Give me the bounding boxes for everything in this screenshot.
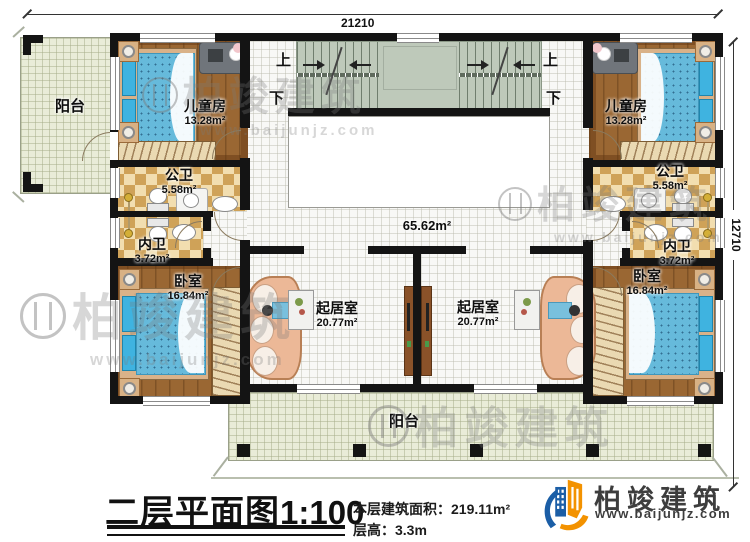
room-area: 16.84m²: [607, 285, 687, 297]
room-name: 阳台: [364, 414, 444, 431]
wall-left-corridor-low: [240, 240, 250, 266]
stair-arrow-line-l2: [357, 64, 371, 66]
floor-area-value: 219.11m²: [451, 501, 510, 517]
blanket: [178, 293, 204, 373]
floor-area-label: 本层建筑面积：: [353, 501, 451, 517]
label-privbath-left: 内卫 3.72m²: [112, 237, 192, 265]
sofa-cushion: [252, 346, 278, 376]
dim-top-value: 21210: [338, 16, 377, 30]
room-area: 65.62m²: [387, 219, 467, 234]
wall-left-closet: [110, 160, 250, 167]
door-gap-balcony-left: [110, 132, 118, 160]
wall-hall-south-a: [245, 246, 304, 254]
void-top-wall: [288, 108, 550, 116]
nightstand: [695, 122, 716, 143]
stair-arrow-line-r2: [521, 64, 535, 66]
headboard-cushion: [699, 58, 713, 96]
headboard-cushion: [122, 335, 136, 371]
floor-height-line: 层高：3.3m: [353, 520, 427, 540]
tv-cabinet-right: [421, 286, 432, 376]
headboard-cushion: [699, 296, 713, 332]
wall-left-corridor-mid: [240, 158, 250, 210]
balcony-column: [470, 444, 483, 457]
title-underline-thick: [107, 525, 345, 529]
label-bedroom-right: 卧室 16.84m²: [607, 269, 687, 297]
bed-right: [625, 288, 715, 380]
label-living-left: 起居室 20.77m²: [297, 301, 377, 329]
sofa-cushion: [250, 316, 274, 344]
room-name: 公卫: [139, 168, 219, 184]
tv-screen: [426, 303, 429, 331]
window-top-child-left: [140, 33, 215, 43]
room-area: 13.28m²: [165, 115, 245, 127]
wall-right-nook-b: [622, 248, 630, 260]
window-bottom-living-left: [297, 384, 360, 394]
cabinet-light: [425, 341, 429, 347]
tv-screen: [407, 303, 410, 331]
floor-height-label: 层高：: [353, 522, 395, 538]
nightstand: [695, 41, 716, 62]
dim-right-value: 12710: [729, 210, 743, 260]
stair-arrow-l2: [349, 60, 357, 70]
sink-oval: [212, 196, 238, 212]
headboard-cushion: [122, 58, 136, 96]
stair-down-label-left: 下: [269, 87, 284, 108]
label-pubbath-right: 公卫 5.58m²: [630, 164, 710, 192]
stair-up-label-left: 上: [276, 49, 291, 70]
label-child-left: 儿童房 13.28m²: [165, 99, 245, 127]
balcony-bottom-chamfer-l: [213, 457, 229, 477]
room-name: 儿童房: [586, 99, 666, 115]
stair-arrow-r2: [513, 60, 521, 70]
wall-left-nook-a: [203, 217, 211, 231]
floor-plan-canvas: 上 下 上 下: [0, 0, 750, 542]
room-area: 20.77m²: [438, 316, 518, 328]
label-pubbath-left: 公卫 5.58m²: [139, 168, 219, 196]
wall-right-corridor-low: [583, 240, 593, 266]
sink-oval: [600, 196, 626, 212]
room-area: 5.58m²: [630, 180, 710, 192]
stair-arrow-line-r1: [467, 64, 481, 66]
rail-knob: [124, 193, 133, 202]
balcony-corner-col-b2: [23, 172, 31, 192]
label-child-right: 儿童房 13.28m²: [586, 99, 666, 127]
window-top-child-right: [620, 33, 692, 43]
room-name: 内卫: [637, 239, 717, 255]
table-flowers: [521, 309, 527, 315]
room-name: 内卫: [112, 237, 192, 253]
stairwell: [296, 41, 542, 112]
wall-hall-south-b: [368, 246, 466, 254]
label-hall-area: 65.62m²: [387, 219, 467, 234]
label-living-right: 起居室 20.77m²: [438, 300, 518, 328]
room-name: 公卫: [630, 164, 710, 180]
window-left-child: [110, 57, 120, 130]
window-left-bath1: [110, 168, 120, 198]
stair-landing: [383, 46, 457, 90]
stair-down-label-right: 下: [546, 87, 561, 108]
sink-basin: [641, 193, 657, 208]
room-area: 16.84m²: [148, 290, 228, 302]
balcony-column: [237, 444, 250, 457]
balcony-corner-col-a2: [23, 35, 31, 55]
title-underline-thin: [107, 534, 345, 536]
floor-height-value: 3.3m: [395, 522, 427, 538]
label-balcony-left: 阳台: [30, 99, 110, 116]
blanket: [629, 293, 655, 373]
ceiling-lamp: [592, 43, 602, 53]
nightstand: [694, 269, 715, 290]
rail-knob: [703, 229, 712, 238]
cabinet-light: [407, 341, 411, 347]
nightstand: [119, 269, 140, 290]
window-right-bath1: [715, 168, 725, 198]
window-top-center: [397, 33, 439, 43]
monitor: [208, 49, 223, 62]
wall-hall-south-c: [530, 246, 591, 254]
room-area: 3.72m²: [112, 253, 192, 265]
room-name: 阳台: [30, 99, 110, 116]
room-name: 卧室: [148, 274, 228, 290]
dim-line-right: [733, 42, 734, 487]
stair-arrow-l1: [317, 60, 325, 70]
room-name: 起居室: [297, 301, 377, 317]
dim-line-top: [27, 14, 719, 15]
window-bottom-bedroom-left: [143, 396, 210, 406]
window-bottom-bedroom-right: [627, 396, 694, 406]
room-name: 卧室: [607, 269, 687, 285]
headboard-cushion: [699, 335, 713, 371]
headboard-cushion: [122, 296, 136, 332]
watermark-logo-icon: [20, 293, 66, 339]
monitor: [614, 49, 629, 62]
wall-left-nook-b: [203, 248, 211, 260]
stair-rail-left: [297, 73, 379, 77]
wall-right-nook-a: [622, 217, 630, 231]
label-privbath-right: 内卫 3.72m²: [637, 239, 717, 267]
balcony-column: [586, 444, 599, 457]
stair-up-label-right: 上: [543, 49, 558, 70]
stair-arrow-r1: [481, 60, 489, 70]
room-area: 20.77m²: [297, 317, 377, 329]
wardrobe-right: [592, 287, 624, 396]
floor-area-line: 本层建筑面积：219.11m²: [353, 499, 510, 519]
wall-right-corridor-mid: [583, 158, 593, 210]
wall-left-bath-divider: [110, 211, 213, 217]
room-name: 起居室: [438, 300, 518, 316]
window-left-bedroom: [110, 300, 120, 372]
person-head: [262, 305, 273, 316]
label-bedroom-left: 卧室 16.84m²: [148, 274, 228, 302]
wall-right-bedroom-living: [583, 266, 593, 396]
rail-knob: [703, 193, 712, 202]
wall-left-bedroom-living: [240, 266, 250, 396]
wall-right-bath-divider: [620, 211, 723, 217]
room-name: 儿童房: [165, 99, 245, 115]
void-opening: [288, 116, 550, 208]
brand-logo-icon: [540, 476, 592, 537]
building-logo-icon: [540, 476, 592, 532]
balcony-column: [698, 444, 711, 457]
stair-arrow-line-l1: [303, 64, 317, 66]
nightstand: [118, 122, 139, 143]
window-right-child: [715, 57, 725, 130]
window-right-bedroom: [715, 300, 725, 372]
person-head: [569, 305, 580, 316]
room-area: 13.28m²: [586, 115, 666, 127]
label-balcony-bottom: 阳台: [364, 414, 444, 431]
table-flowers: [523, 298, 531, 306]
nightstand: [118, 41, 139, 62]
balcony-bottom-chamfer-r: [712, 457, 728, 477]
window-bottom-living-right: [474, 384, 537, 394]
brand-website: www.baijunjz.com: [595, 506, 731, 521]
room-area: 3.72m²: [637, 255, 717, 267]
room-area: 5.58m²: [139, 184, 219, 196]
wall-center-vertical: [413, 252, 421, 392]
balcony-column: [353, 444, 366, 457]
